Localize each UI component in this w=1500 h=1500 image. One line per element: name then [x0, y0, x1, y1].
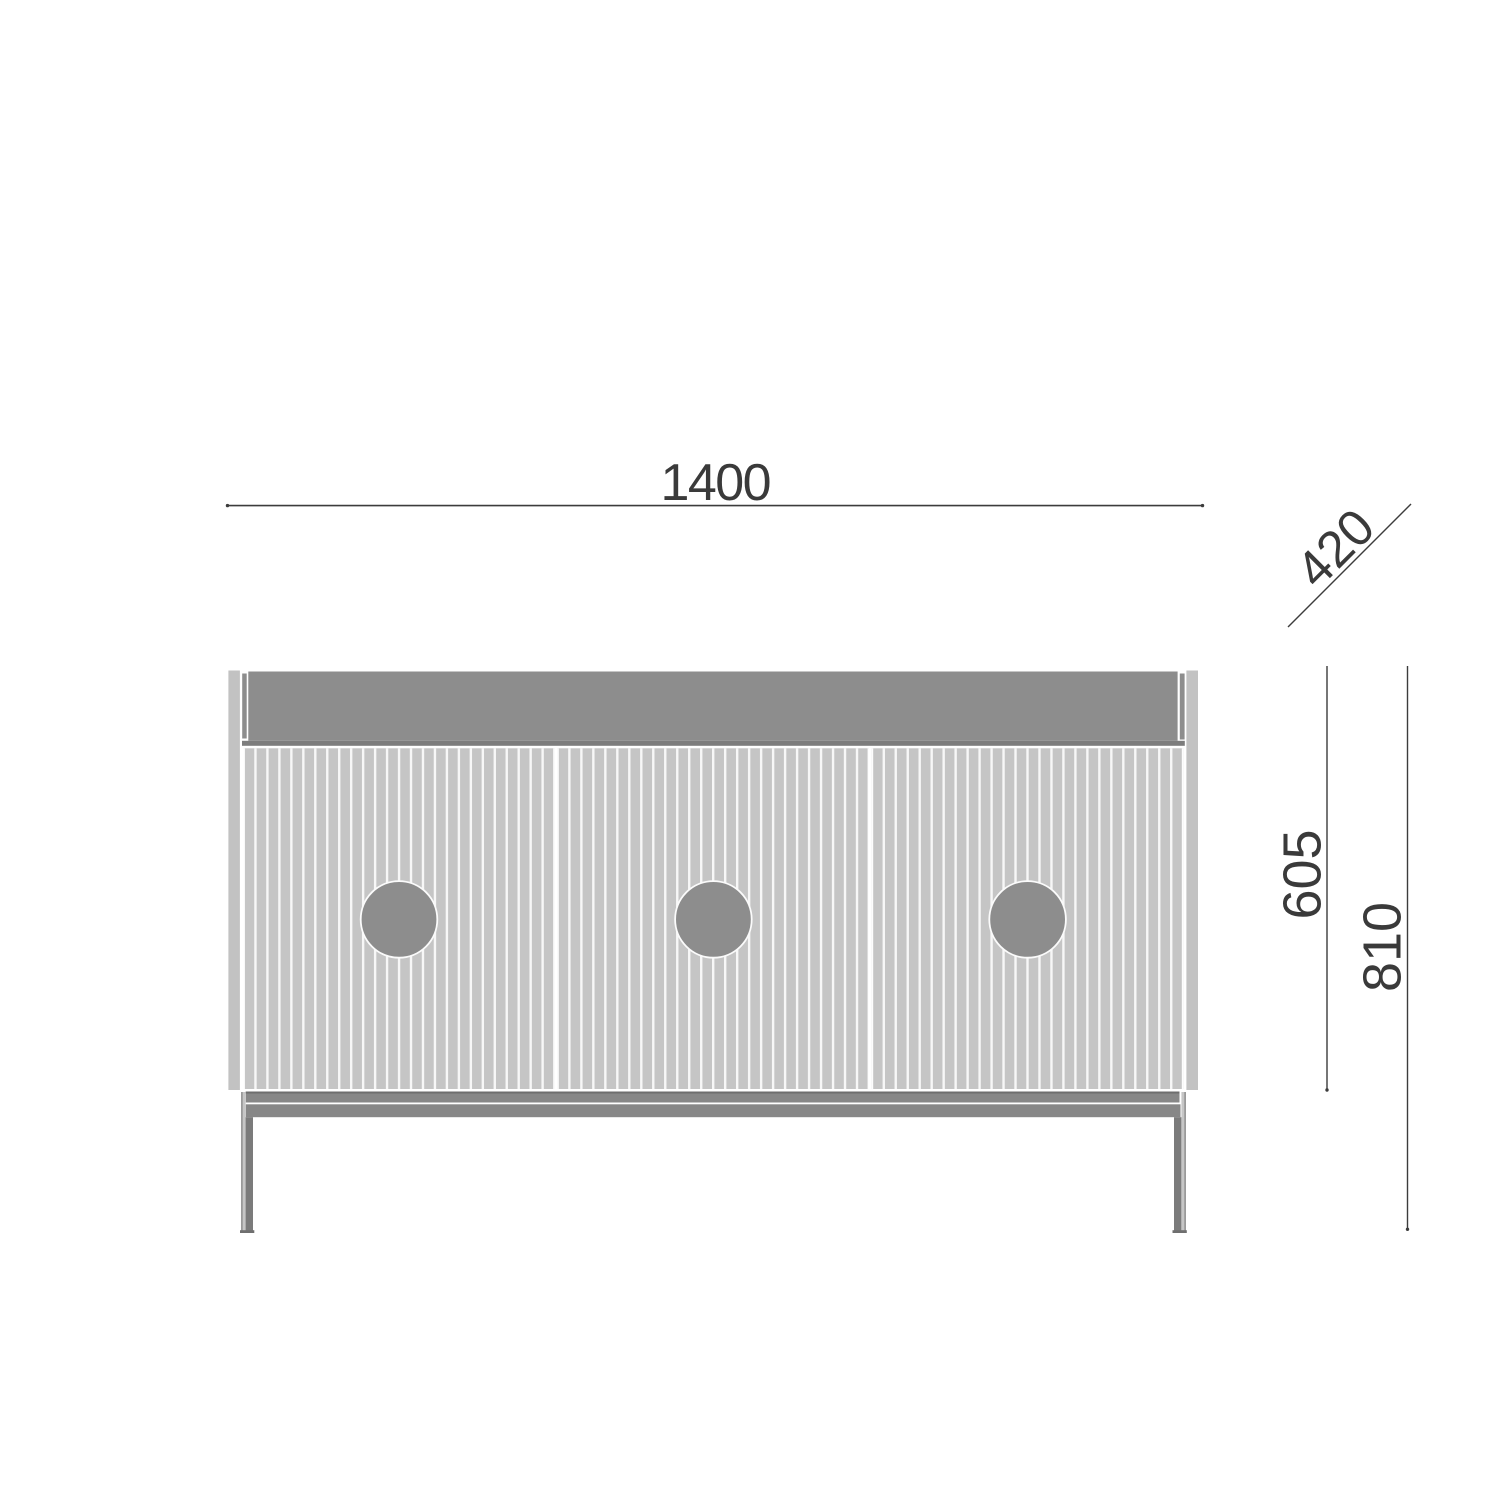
svg-text:1400: 1400	[661, 454, 772, 512]
svg-text:810: 810	[1353, 902, 1413, 992]
svg-text:605: 605	[1273, 829, 1333, 919]
